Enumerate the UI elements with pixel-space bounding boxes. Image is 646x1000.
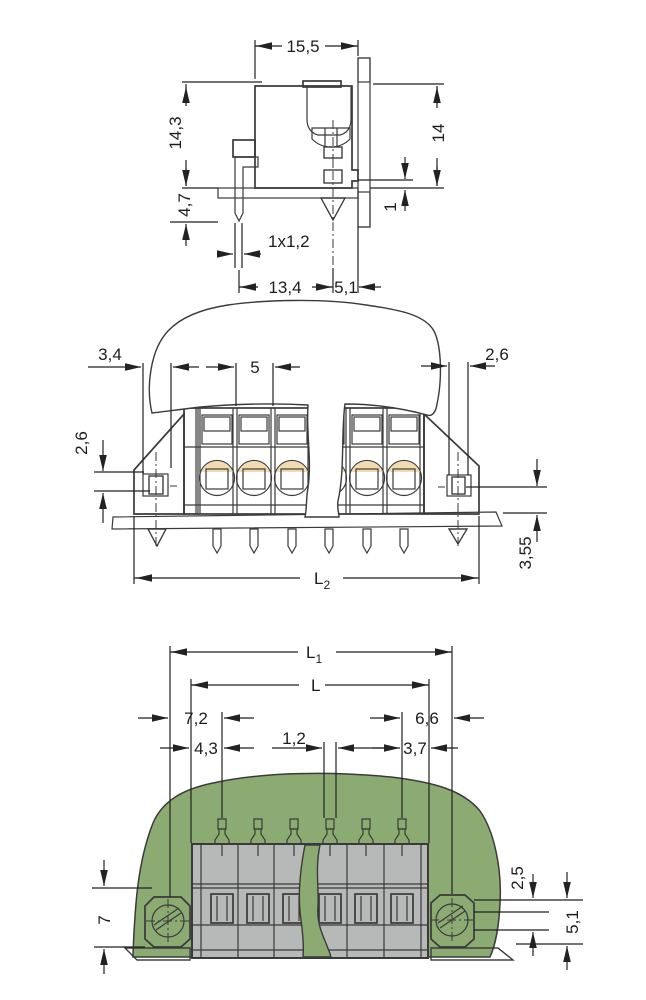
dim-body-depth: 5,1 bbox=[563, 910, 582, 934]
dim-pin-width: 1,2 bbox=[282, 729, 306, 748]
dim-panel-offset: 1 bbox=[381, 202, 400, 211]
dim-height-overall: 14,3 bbox=[166, 116, 185, 149]
dim-length-body: L bbox=[311, 676, 320, 695]
dim-pin-length: 4,7 bbox=[175, 193, 194, 217]
dim-pin-to-screw: 13,4 bbox=[268, 278, 301, 297]
dim-end-offset: 3,4 bbox=[98, 345, 122, 364]
dim-pin-last-to-edge: 3,7 bbox=[403, 739, 427, 758]
dim-pcb-offset: 3,55 bbox=[516, 536, 535, 569]
dim-screw-to-panel: 5,1 bbox=[334, 278, 358, 297]
dim-housing-width: 15,5 bbox=[286, 37, 319, 56]
datasheet-drawing-page: 15,5 14,3 4,7 1x1,2 13,4 5,1 14 bbox=[0, 0, 646, 1000]
dim-body-offset: 2,5 bbox=[508, 866, 527, 890]
technical-drawing: 15,5 14,3 4,7 1x1,2 13,4 5,1 14 bbox=[0, 0, 646, 1000]
dim-edge-to-pin1: 4,3 bbox=[194, 739, 218, 758]
dim-slot-height: 2,6 bbox=[72, 431, 91, 455]
dim-pin-last-to-screw: 6,6 bbox=[415, 709, 439, 728]
dim-pin-section: 1x1,2 bbox=[268, 232, 310, 251]
dim-slot-width: 2,6 bbox=[485, 345, 509, 364]
dim-height-panel: 14 bbox=[429, 124, 448, 143]
dim-screw-to-pin1: 7,2 bbox=[184, 709, 208, 728]
dim-flange-height: 7 bbox=[95, 915, 114, 924]
dim-pitch: 5 bbox=[250, 358, 259, 377]
